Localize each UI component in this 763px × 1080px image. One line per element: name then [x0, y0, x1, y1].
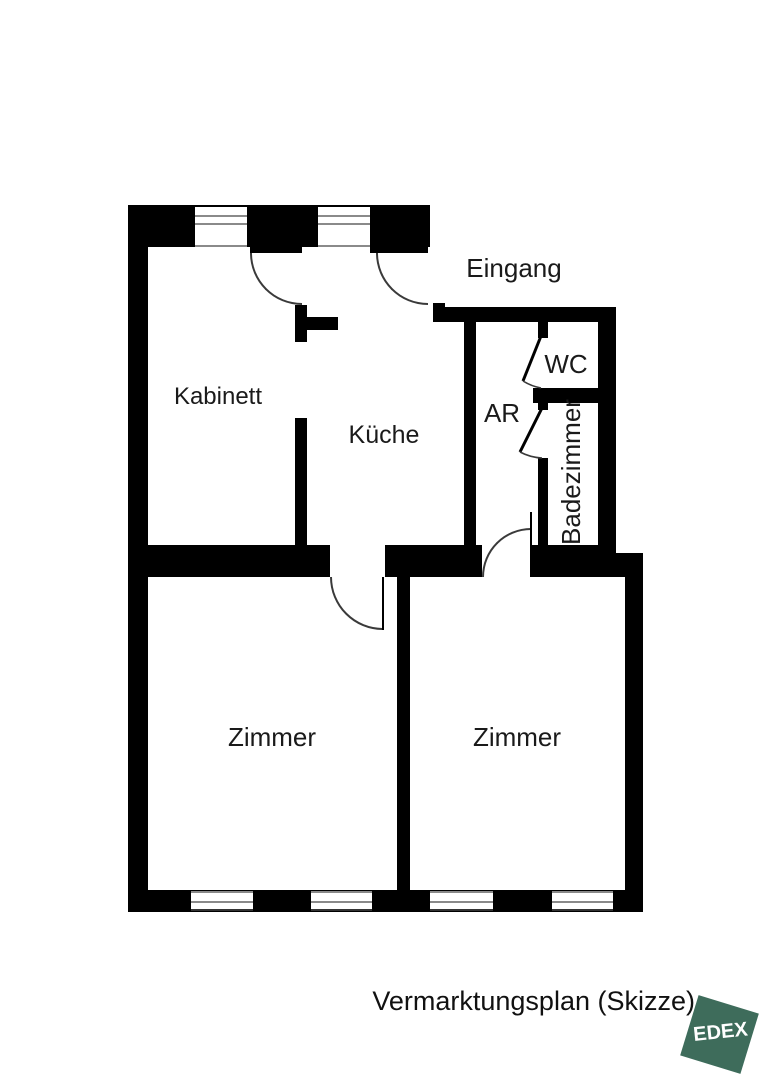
- door-arc-entrance: [376, 253, 428, 305]
- door-arc-hall: [482, 528, 531, 577]
- wall-top: [128, 205, 430, 247]
- room-label-ar: AR: [452, 398, 552, 429]
- window: [311, 891, 372, 911]
- wall-entrance: [433, 307, 616, 322]
- wall-middle-connector: [616, 553, 643, 577]
- wall-entrance-step: [433, 303, 445, 322]
- wall-right-upper: [598, 307, 616, 555]
- room-label-badezimmer: Badezimmer: [556, 392, 582, 552]
- window: [430, 891, 493, 911]
- window: [318, 207, 370, 247]
- room-label-wc: WC: [516, 349, 616, 380]
- wall-partition-arm: [307, 317, 338, 330]
- window: [191, 891, 253, 911]
- wall-bad-west: [538, 458, 548, 545]
- wall-zimmer-divider: [397, 577, 410, 890]
- wall-middle-left: [128, 545, 330, 577]
- floorplan-canvas: Eingang Kabinett Küche AR WC Badezimmer …: [0, 0, 763, 1080]
- room-label-zimmer-left: Zimmer: [192, 722, 352, 753]
- room-label-zimmer-right: Zimmer: [437, 722, 597, 753]
- door-arc-kabinett: [250, 253, 302, 305]
- window: [552, 891, 613, 911]
- wall-ar-west: [464, 322, 476, 545]
- room-label-eingang: Eingang: [434, 253, 594, 284]
- room-label-kabinett: Kabinett: [138, 383, 298, 411]
- plan-caption: Vermarktungsplan (Skizze): [345, 986, 695, 1017]
- door-leaf-kueche: [382, 577, 384, 630]
- wall-right-lower: [625, 553, 643, 912]
- room-label-kueche: Küche: [304, 421, 464, 450]
- wall-partition-stub-upper: [295, 305, 307, 342]
- brand-logo-text: EDEX: [684, 1018, 758, 1048]
- wall-middle-center: [385, 545, 482, 577]
- window: [195, 207, 247, 247]
- door-leaf-hall: [530, 512, 532, 577]
- door-arc-kueche: [330, 577, 383, 630]
